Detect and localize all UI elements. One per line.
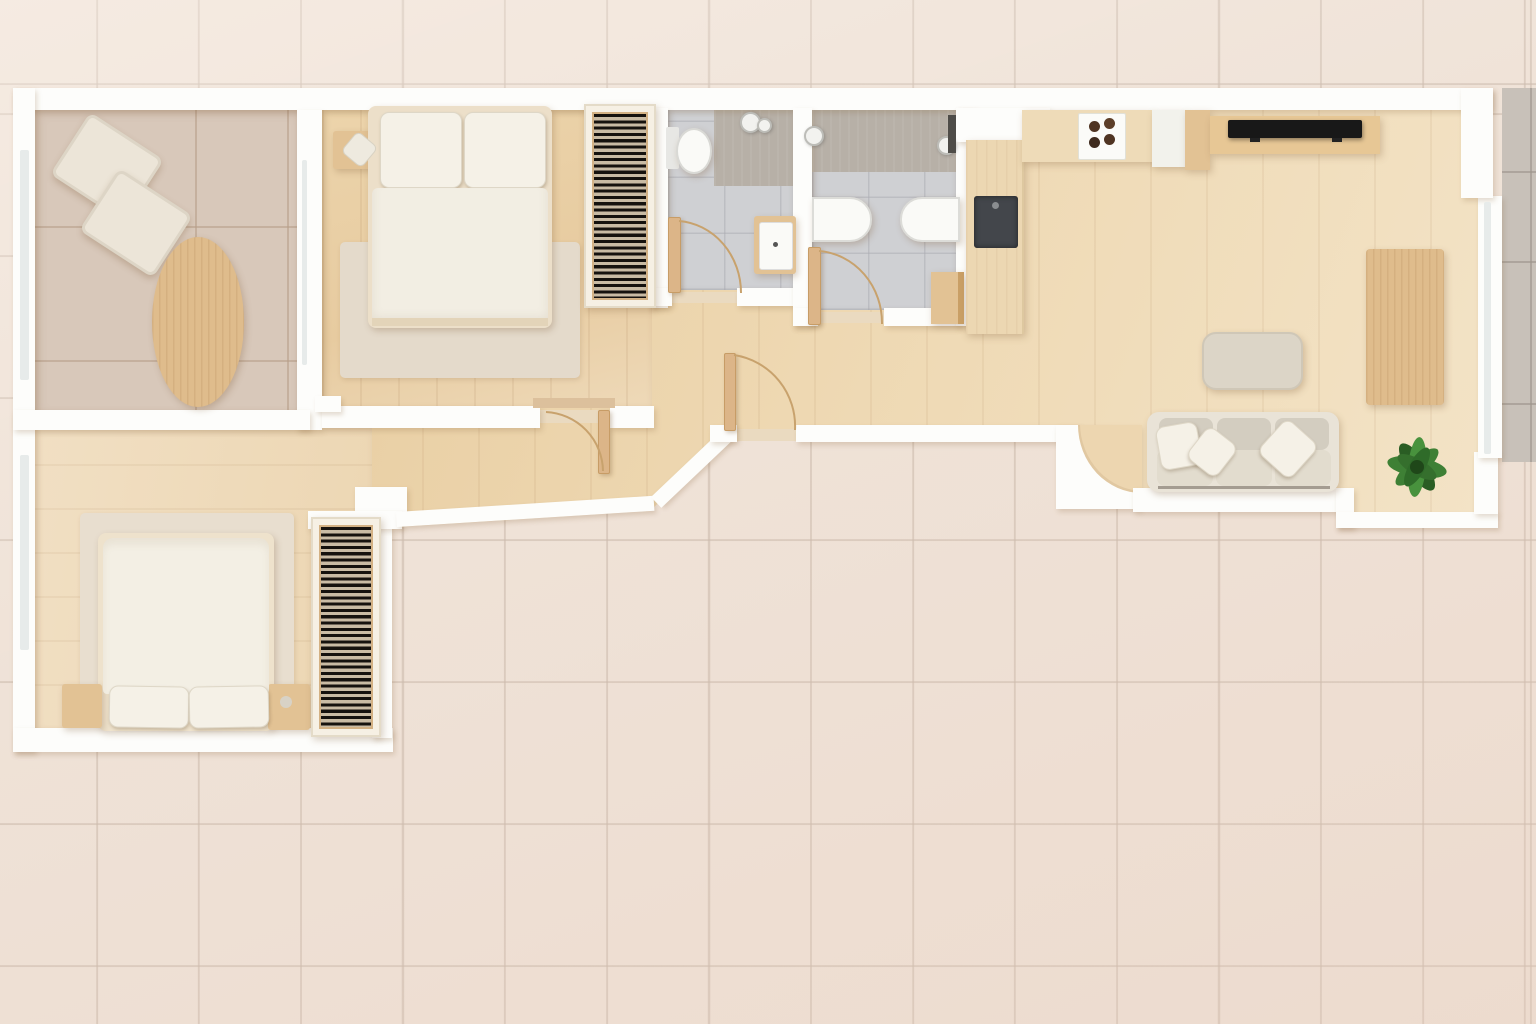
hob-burner-3 <box>1089 137 1100 148</box>
bedroom2-pillow-right <box>189 685 270 728</box>
hob-burner-1 <box>1089 121 1100 132</box>
hob-burner-2 <box>1104 118 1115 129</box>
bathroom1-faucet <box>773 242 778 247</box>
right-wall-lower <box>1474 452 1498 514</box>
office-table <box>152 237 244 407</box>
bedroom2-wardrobe-slats <box>319 525 373 729</box>
bedroom1-pillow-left <box>380 112 462 188</box>
bedroom1-pillow-right <box>464 112 546 188</box>
partition-glass <box>302 160 307 365</box>
bedroom1-door <box>598 410 610 474</box>
bathroom2-door <box>808 247 821 325</box>
terrace-floor <box>1502 88 1536 462</box>
bedroom2-pillow-left <box>109 685 190 728</box>
bedroom2-duvet <box>103 538 269 694</box>
bathroom2-shower-area <box>812 108 956 172</box>
bedroom1-footboard <box>372 318 548 326</box>
tv-foot-right <box>1332 138 1342 142</box>
entrance-door <box>724 353 736 431</box>
kitchen-faucet <box>992 202 999 209</box>
right-wall-upper <box>1461 88 1493 198</box>
tv-screen <box>1228 120 1362 138</box>
bedroom1-lintel <box>533 398 615 408</box>
bedroom1-wardrobe-slats <box>592 112 648 300</box>
dining-table <box>1366 249 1444 405</box>
bathroom2-glass-panel <box>948 115 956 153</box>
bedroom2-nightstand-left <box>62 684 102 728</box>
bathroom2-cabinet <box>931 272 964 324</box>
kitchen-cabinet-wood <box>1185 110 1210 170</box>
wall-jog <box>315 396 341 412</box>
bedroom2-window <box>20 455 29 650</box>
top-wall <box>13 88 1493 110</box>
tv-foot-left <box>1250 138 1260 142</box>
bedroom2-nightstand-decor <box>280 696 292 708</box>
kitchen-hob <box>1078 113 1126 160</box>
bedroom1-bottom-wall-left <box>322 406 540 428</box>
living-terrace-window <box>1484 202 1491 454</box>
kitchen-tall-cabinet-white <box>1152 110 1185 167</box>
office-bottom-wall <box>13 410 310 430</box>
hob-burner-4 <box>1104 134 1115 145</box>
floor-plan-render <box>0 0 1536 1024</box>
bathroom1-bottom-wall-right <box>737 288 795 306</box>
bathroom2-bathtub <box>812 197 872 242</box>
bathroom1-door-sill <box>670 292 737 303</box>
bottom-right-wall <box>1336 512 1498 528</box>
bedroom1-bottom-wall-right <box>610 406 654 428</box>
bathroom2-door-sill <box>818 312 884 323</box>
sofa-seam <box>1158 486 1330 489</box>
bathroom2-washbasin <box>900 197 960 242</box>
bathroom1-door <box>668 217 681 293</box>
hall-bottom-wall <box>796 425 1080 442</box>
office-window <box>20 150 29 380</box>
shower2-head-left <box>804 126 824 146</box>
shower1-head-small <box>757 118 772 133</box>
office-bedroom1-partition <box>297 110 322 430</box>
coffee-table <box>1202 332 1303 390</box>
toilet-bowl <box>676 128 712 174</box>
entrance-door-sill <box>735 429 797 441</box>
bedroom1-duvet <box>372 188 548 326</box>
